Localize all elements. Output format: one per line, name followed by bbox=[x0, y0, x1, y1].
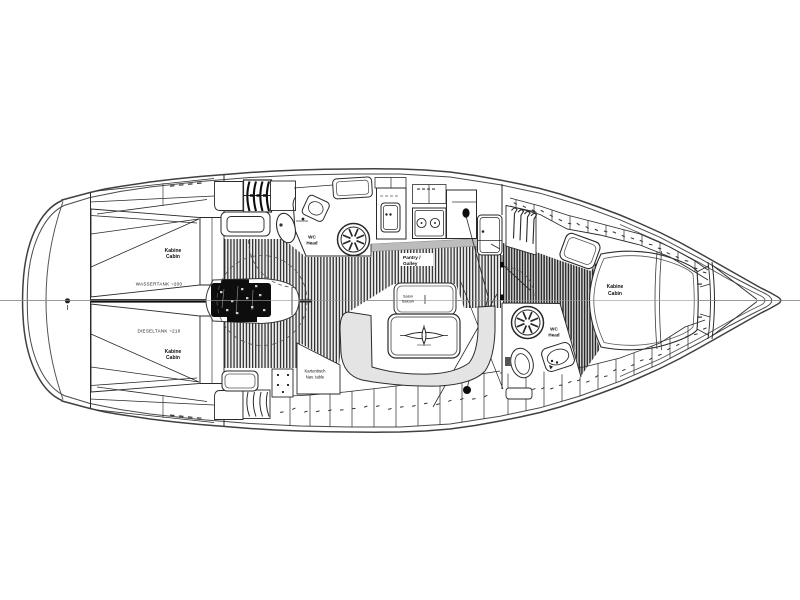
svg-text:Saloon: Saloon bbox=[402, 299, 414, 304]
svg-text:Nav. table: Nav. table bbox=[306, 375, 325, 380]
svg-text:Pantry /: Pantry / bbox=[403, 255, 421, 261]
svg-text:Cabin: Cabin bbox=[166, 254, 180, 260]
svg-text:Head: Head bbox=[548, 333, 559, 338]
svg-text:WASSERTANK ~200: WASSERTANK ~200 bbox=[136, 282, 183, 287]
svg-text:WC: WC bbox=[550, 327, 558, 332]
svg-text:Kabine: Kabine bbox=[607, 284, 624, 290]
svg-text:DIESELTANK ~210: DIESELTANK ~210 bbox=[137, 329, 180, 334]
svg-text:Cabin: Cabin bbox=[166, 355, 180, 361]
svg-text:Head: Head bbox=[306, 241, 317, 246]
svg-text:WC: WC bbox=[308, 235, 316, 240]
svg-text:Cabin: Cabin bbox=[608, 291, 622, 297]
svg-text:Kartentisch: Kartentisch bbox=[305, 369, 327, 374]
svg-text:Galley: Galley bbox=[403, 261, 418, 267]
